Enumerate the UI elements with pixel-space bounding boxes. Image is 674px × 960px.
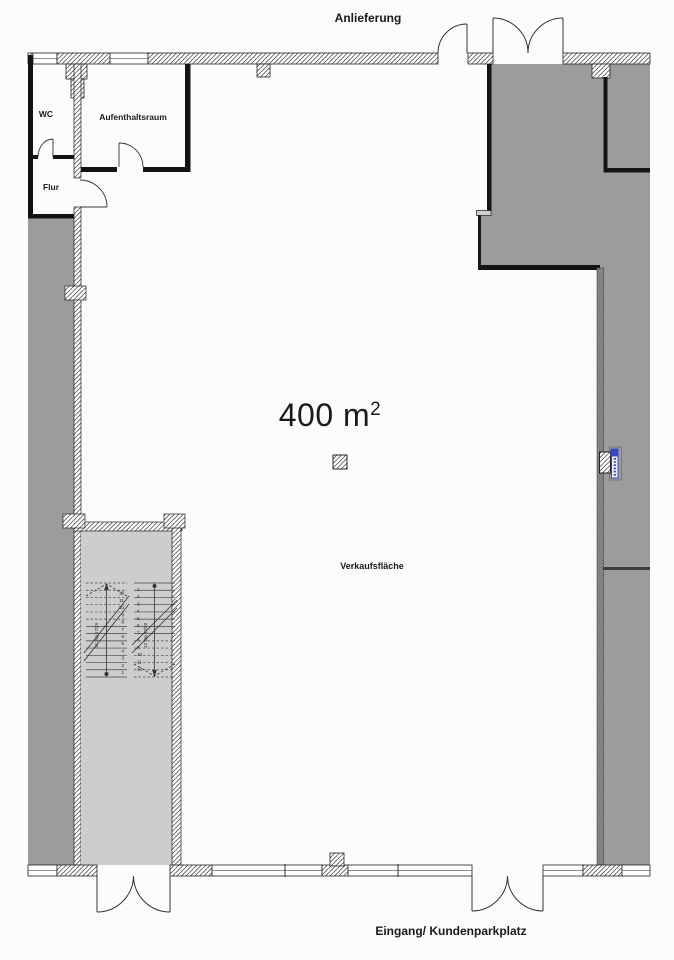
shaded-left-strip [28, 218, 74, 865]
stair-step-number: 4 [121, 648, 124, 653]
stair-step-number: 8 [121, 620, 124, 625]
stair-step-number: 5 [137, 616, 140, 621]
stair-step-number: 7 [137, 630, 140, 635]
stair-step-number: 9 [137, 645, 140, 650]
stair-walkline-start [105, 672, 109, 676]
label-area: 400 m2 [279, 397, 382, 433]
stair-step-number: 3 [121, 656, 124, 661]
stair-step-number: 6 [137, 623, 140, 628]
stair-step-number: 6 [121, 634, 124, 639]
stair-step-number: 1 [121, 670, 124, 675]
area-superscript: 2 [370, 399, 381, 420]
stair-walkline-start [153, 584, 157, 588]
stair-step-number: 12 [119, 591, 125, 596]
label-anlieferung: Anlieferung [335, 11, 402, 25]
blue-marker [611, 449, 619, 457]
stair-step-number: 2 [137, 594, 140, 599]
stair-step-number: 12 [137, 667, 143, 672]
column-symbol [333, 455, 347, 469]
label-flur: Flur [43, 182, 60, 192]
label-wc: WC [39, 109, 53, 119]
stair-step-number: 4 [137, 609, 140, 614]
label-verkaufsflaeche: Verkaufsfläche [340, 561, 404, 571]
stair-step-number: 11 [119, 598, 124, 603]
floor-plan-drawing: 112233445566778899101011111212 12 Stg 17… [0, 0, 674, 960]
label-aufenthaltsraum: Aufenthaltsraum [99, 112, 167, 122]
stair-step-number: 8 [137, 638, 140, 643]
area-value: 400 m [279, 397, 370, 433]
stair-step-number: 3 [137, 601, 140, 606]
stair-step-number: 11 [137, 659, 142, 664]
stair-step-number: 10 [137, 652, 143, 657]
stair-step-number: 5 [121, 641, 124, 646]
stairwell-floor [81, 531, 172, 865]
floor-plan-page: 112233445566778899101011111212 12 Stg 17… [0, 0, 674, 960]
stair-step-number: 2 [121, 663, 124, 668]
label-eingang: Eingang/ Kundenparkplatz [375, 924, 526, 938]
stair-annotation-right: 12 Stg 17/29 [143, 623, 148, 648]
stair-step-number: 9 [121, 612, 124, 617]
stair-step-number: 7 [121, 627, 124, 632]
stair-step-number: 1 [137, 587, 140, 592]
stair-annotation-left: 12 Stg 17/29 [94, 623, 99, 648]
stair-step-number: 10 [119, 605, 125, 610]
